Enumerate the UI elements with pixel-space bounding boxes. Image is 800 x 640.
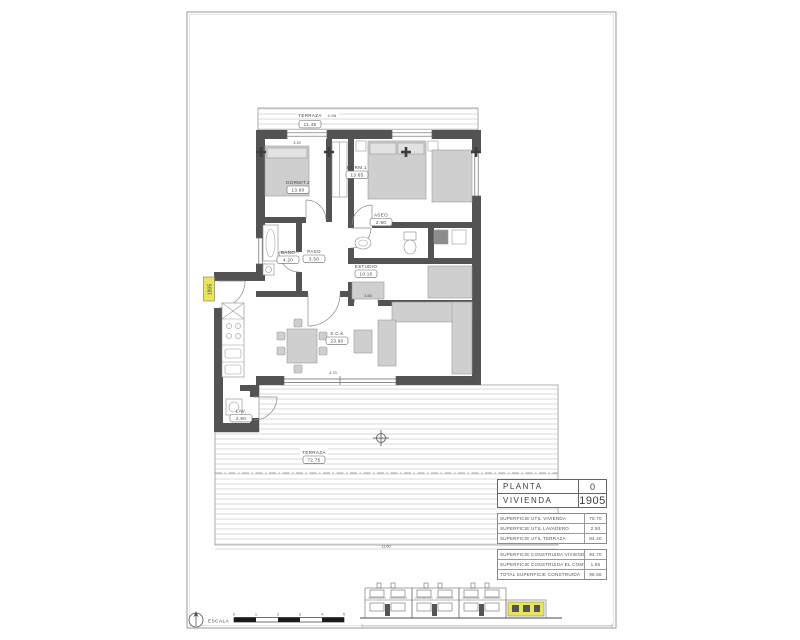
room-area-dorm1: 13.65 bbox=[351, 173, 364, 178]
dim-living: 4.70 bbox=[329, 371, 336, 375]
util-lavadero-value: 2.90 bbox=[584, 524, 606, 533]
room-area-lav: 2.90 bbox=[236, 416, 246, 421]
bathtub bbox=[263, 225, 278, 261]
planta-row: PLANTA 0 bbox=[498, 480, 606, 493]
wardrobe-hall bbox=[332, 142, 347, 197]
scale-bar: ESCALA 0 1 2 3 4 5 bbox=[208, 613, 345, 624]
dim-dorm2: 3.20 bbox=[293, 141, 300, 145]
room-label-terraza-top: TERRAZA bbox=[298, 113, 322, 118]
entry-unit-number: 1905 bbox=[208, 284, 214, 295]
dining-table bbox=[277, 319, 327, 373]
dim-deck-right: 5.70 bbox=[466, 380, 473, 384]
sofa bbox=[378, 302, 472, 374]
north-compass-icon bbox=[189, 611, 203, 627]
construida-vivienda-value: 94.70 bbox=[584, 550, 606, 559]
construida-comunes-value: 1.85 bbox=[584, 560, 606, 569]
room-label-dorm1: DORM.1 bbox=[347, 165, 367, 170]
dim-terraza-top: 4.95 bbox=[328, 113, 337, 118]
planta-label: PLANTA bbox=[498, 482, 578, 491]
scale-label: ESCALA bbox=[208, 619, 230, 624]
util-terraza-value: 84.20 bbox=[584, 534, 606, 543]
wardrobe-estudio bbox=[428, 266, 472, 298]
room-label-estudio: ESTUDIO bbox=[355, 264, 378, 269]
dryer bbox=[452, 230, 466, 244]
room-area-paso: 3.50 bbox=[309, 257, 319, 262]
surface-util-table: SUPERFICIE UTIL VIVIENDA 75.70 SUPERFICI… bbox=[497, 513, 607, 544]
elevation-module bbox=[412, 583, 459, 618]
room-area-sck: 23.90 bbox=[331, 339, 344, 344]
room-label-paso: PASO bbox=[307, 249, 321, 254]
table-row: SUPERFICIE UTIL VIVIENDA 75.70 bbox=[498, 514, 606, 523]
room-label-aseo: ASEO bbox=[374, 213, 388, 218]
construida-vivienda-label: SUPERFICIE CONSTRUIDA VIVIENDA bbox=[498, 552, 584, 557]
coffee-table bbox=[354, 330, 372, 353]
title-block-main: PLANTA 0 VIVIENDA 1905 bbox=[497, 479, 607, 508]
table-row: SUPERFICIE CONSTRUIDA EL.COMUNES 1.85 bbox=[498, 559, 606, 569]
sink-aseo bbox=[355, 237, 371, 249]
entry-unit-marker: 1905 bbox=[204, 277, 215, 301]
scale-tick-5: 5 bbox=[343, 613, 345, 617]
table-row: SUPERFICIE CONSTRUIDA VIVIENDA 94.70 bbox=[498, 550, 606, 559]
kitchen-counter bbox=[222, 303, 244, 377]
sink-bano bbox=[263, 264, 274, 275]
room-label-bano: BAÑO bbox=[281, 249, 295, 255]
construida-total-label: TOTAL SUPERFICIE CONSTRUIDA bbox=[498, 572, 584, 577]
elevation-key bbox=[360, 583, 612, 629]
vivienda-value: 1905 bbox=[578, 494, 606, 507]
elevation-module bbox=[365, 583, 412, 618]
wardrobe-dorm1 bbox=[432, 150, 472, 202]
util-terraza-label: SUPERFICIE UTIL TERRAZA bbox=[498, 536, 584, 541]
room-label-lav: LAV. bbox=[236, 409, 246, 414]
room-area-terraza-top: 11.45 bbox=[304, 122, 317, 127]
surface-construida-table: SUPERFICIE CONSTRUIDA VIVIENDA 94.70 SUP… bbox=[497, 549, 607, 580]
table-row: SUPERFICIE UTIL TERRAZA 84.20 bbox=[498, 533, 606, 543]
util-vivienda-value: 75.70 bbox=[584, 514, 606, 523]
room-area-aseo: 2.90 bbox=[376, 220, 386, 225]
room-label-sck: S.C.K bbox=[330, 331, 344, 336]
top-terrace bbox=[258, 108, 478, 130]
room-area-dormit2: 13.60 bbox=[292, 188, 305, 193]
construida-total-value: 96.55 bbox=[584, 570, 606, 579]
util-lavadero-label: SUPERFICIE UTIL LAVADERO bbox=[498, 526, 584, 531]
scale-tick-4: 4 bbox=[321, 613, 323, 617]
scale-tick-2: 2 bbox=[277, 613, 279, 617]
room-area-terraza: 72.75 bbox=[308, 458, 321, 463]
util-vivienda-label: SUPERFICIE UTIL VIVIENDA bbox=[498, 516, 584, 521]
scale-tick-0: 0 bbox=[233, 613, 235, 617]
dim-estudio: 3.60 bbox=[364, 294, 371, 298]
washer bbox=[434, 230, 448, 244]
toilet-aseo bbox=[404, 232, 416, 254]
room-area-bano: 4.20 bbox=[283, 258, 293, 263]
floor-plan-svg: 1905 TERRAZA 4.95 11.45 DORMIT.2 13.60 D… bbox=[0, 0, 800, 640]
construida-comunes-label: SUPERFICIE CONSTRUIDA EL.COMUNES bbox=[498, 562, 584, 567]
drawing-sheet: 1905 TERRAZA 4.95 11.45 DORMIT.2 13.60 D… bbox=[0, 0, 800, 640]
bed-double-dorm1 bbox=[356, 141, 438, 199]
scale-tick-1: 1 bbox=[255, 613, 257, 617]
title-block: PLANTA 0 VIVIENDA 1905 SUPERFICIE UTIL V… bbox=[497, 479, 607, 580]
elevation-highlighted-unit bbox=[506, 600, 546, 618]
dim-deck-bottom: 11.60 bbox=[381, 545, 390, 549]
room-area-estudio: 10.10 bbox=[360, 272, 373, 277]
vivienda-row: VIVIENDA 1905 bbox=[498, 493, 606, 507]
table-row: SUPERFICIE UTIL LAVADERO 2.90 bbox=[498, 523, 606, 533]
planta-value: 0 bbox=[578, 480, 606, 493]
room-label-terraza: TERRAZA bbox=[302, 450, 326, 455]
scale-tick-3: 3 bbox=[299, 613, 301, 617]
elevation-module bbox=[459, 583, 506, 618]
table-row: TOTAL SUPERFICIE CONSTRUIDA 96.55 bbox=[498, 569, 606, 579]
vivienda-label: VIVIENDA bbox=[498, 496, 578, 505]
room-label-dormit2: DORMIT.2 bbox=[286, 180, 310, 185]
